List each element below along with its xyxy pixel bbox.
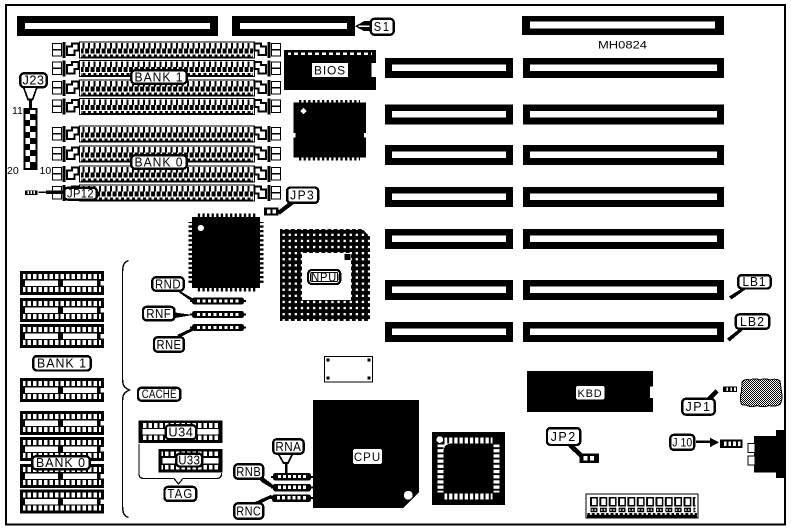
svg-text:S1: S1 bbox=[374, 19, 391, 34]
svg-text:RNB: RNB bbox=[236, 465, 261, 479]
svg-text:RNF: RNF bbox=[146, 307, 171, 321]
svg-text:NPU: NPU bbox=[311, 270, 337, 284]
svg-text:RNC: RNC bbox=[236, 504, 261, 518]
svg-text:U33: U33 bbox=[178, 453, 200, 467]
svg-text:11: 11 bbox=[12, 105, 23, 117]
svg-text:J 10: J 10 bbox=[672, 435, 692, 449]
svg-text:20: 20 bbox=[7, 165, 19, 177]
svg-text:RNE: RNE bbox=[156, 338, 181, 352]
svg-text:JP1: JP1 bbox=[686, 399, 712, 414]
svg-text:CACHE: CACHE bbox=[142, 389, 177, 401]
svg-text:KBD: KBD bbox=[577, 388, 602, 400]
svg-text:LB2: LB2 bbox=[740, 315, 765, 329]
svg-text:BANK 0: BANK 0 bbox=[36, 456, 86, 470]
svg-text:J23: J23 bbox=[23, 74, 45, 88]
svg-text:RNA: RNA bbox=[275, 440, 301, 454]
svg-text:BANK 1: BANK 1 bbox=[135, 70, 184, 84]
svg-text:LB1: LB1 bbox=[743, 275, 767, 289]
svg-text:JP12: JP12 bbox=[67, 189, 94, 201]
svg-text:BANK 0: BANK 0 bbox=[135, 155, 184, 169]
svg-text:MH0824: MH0824 bbox=[598, 40, 647, 52]
svg-text:BIOS: BIOS bbox=[314, 64, 346, 78]
svg-text:CPU: CPU bbox=[354, 452, 381, 464]
svg-text:JP3: JP3 bbox=[290, 188, 315, 203]
svg-text:JP2: JP2 bbox=[551, 429, 577, 444]
svg-text:10: 10 bbox=[40, 165, 52, 177]
svg-text:U34: U34 bbox=[168, 426, 193, 440]
svg-text:BANK 1: BANK 1 bbox=[37, 357, 87, 371]
svg-text:RND: RND bbox=[155, 277, 181, 291]
svg-text:TAG: TAG bbox=[167, 487, 193, 501]
